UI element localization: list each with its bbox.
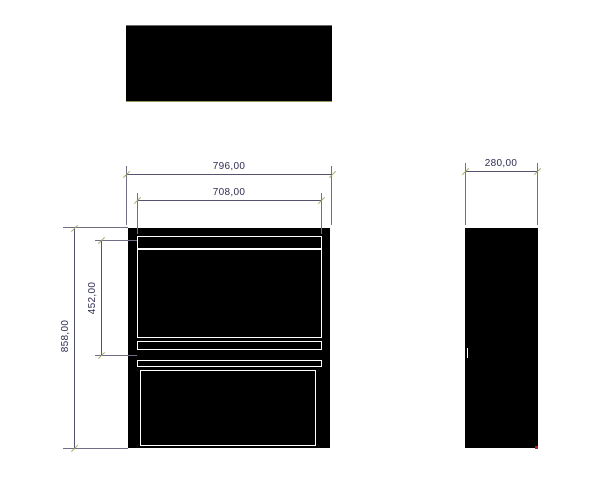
- side-endpoint-marker: [535, 446, 538, 449]
- drawing-canvas: 796,00 708,00 280,00 858,00 452,00: [0, 0, 616, 491]
- dim-label-opening-width: 708,00: [213, 188, 245, 198]
- dim-line-front-width: [126, 174, 332, 175]
- side-edge-mark: [467, 348, 468, 358]
- front-drawer-panel: [140, 370, 316, 446]
- dim-label-height: 858,00: [61, 320, 71, 352]
- side-view-body: [465, 228, 538, 448]
- dim-label-front-width: 796,00: [213, 162, 245, 172]
- front-mid-rail: [137, 341, 322, 350]
- dim-line-opening-height: [101, 240, 102, 355]
- dim-label-opening-height: 452,00: [88, 282, 98, 314]
- front-top-rail: [137, 236, 322, 249]
- dim-line-opening-width: [137, 200, 322, 201]
- top-view-body: [126, 25, 332, 102]
- dim-line-height: [74, 228, 75, 448]
- dim-label-depth: 280,00: [485, 159, 517, 169]
- front-main-panel: [137, 249, 322, 338]
- front-thin-strip: [137, 360, 322, 367]
- dim-line-depth: [465, 171, 538, 172]
